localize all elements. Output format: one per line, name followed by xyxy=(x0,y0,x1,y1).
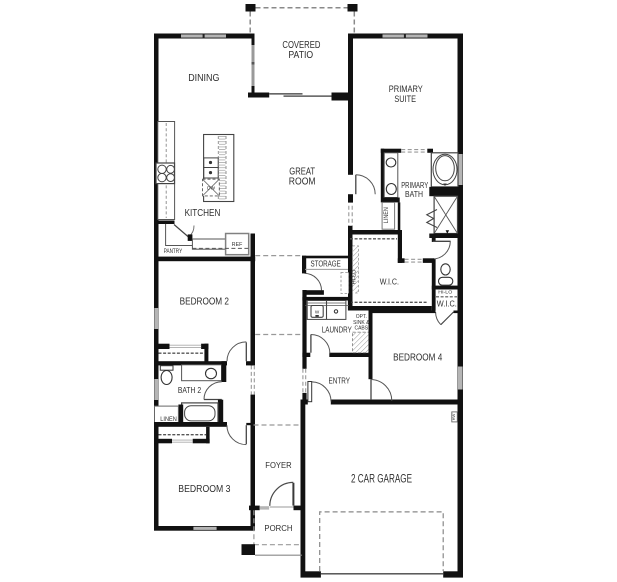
svg-text:SUITE: SUITE xyxy=(394,94,416,105)
svg-text:ENTRY: ENTRY xyxy=(329,377,351,386)
svg-text:PATIO: PATIO xyxy=(288,50,313,61)
svg-text:KITCHEN: KITCHEN xyxy=(185,208,221,219)
svg-text:DINING: DINING xyxy=(188,73,219,84)
svg-text:ROOM: ROOM xyxy=(289,177,316,188)
svg-text:CABS: CABS xyxy=(354,325,368,331)
svg-text:HI-LO: HI-LO xyxy=(351,269,357,285)
svg-text:LAUNDRY: LAUNDRY xyxy=(322,326,353,335)
svg-text:BATH: BATH xyxy=(405,190,423,199)
svg-text:W.I.C.: W.I.C. xyxy=(437,298,457,308)
svg-text:FOYER: FOYER xyxy=(265,461,292,470)
svg-text:BEDROOM 3: BEDROOM 3 xyxy=(178,484,231,495)
svg-text:LINEN: LINEN xyxy=(384,207,390,223)
svg-text:BEDROOM 2: BEDROOM 2 xyxy=(180,297,230,308)
svg-text:PANTRY: PANTRY xyxy=(164,249,183,255)
svg-text:BATH 2: BATH 2 xyxy=(178,386,202,395)
svg-text:PRIMARY: PRIMARY xyxy=(401,181,428,190)
svg-text:HI-LO: HI-LO xyxy=(438,289,452,294)
svg-text:PORCH: PORCH xyxy=(264,524,292,533)
svg-text:2 CAR GARAGE: 2 CAR GARAGE xyxy=(351,474,412,486)
svg-text:DW: DW xyxy=(207,186,215,192)
svg-text:W: W xyxy=(315,310,320,315)
svg-text:BEDROOM 4: BEDROOM 4 xyxy=(393,352,443,363)
svg-text:HW: HW xyxy=(451,413,456,420)
svg-text:STORAGE: STORAGE xyxy=(311,259,341,268)
svg-text:W.I.C.: W.I.C. xyxy=(380,276,399,286)
svg-text:REF: REF xyxy=(232,242,243,248)
